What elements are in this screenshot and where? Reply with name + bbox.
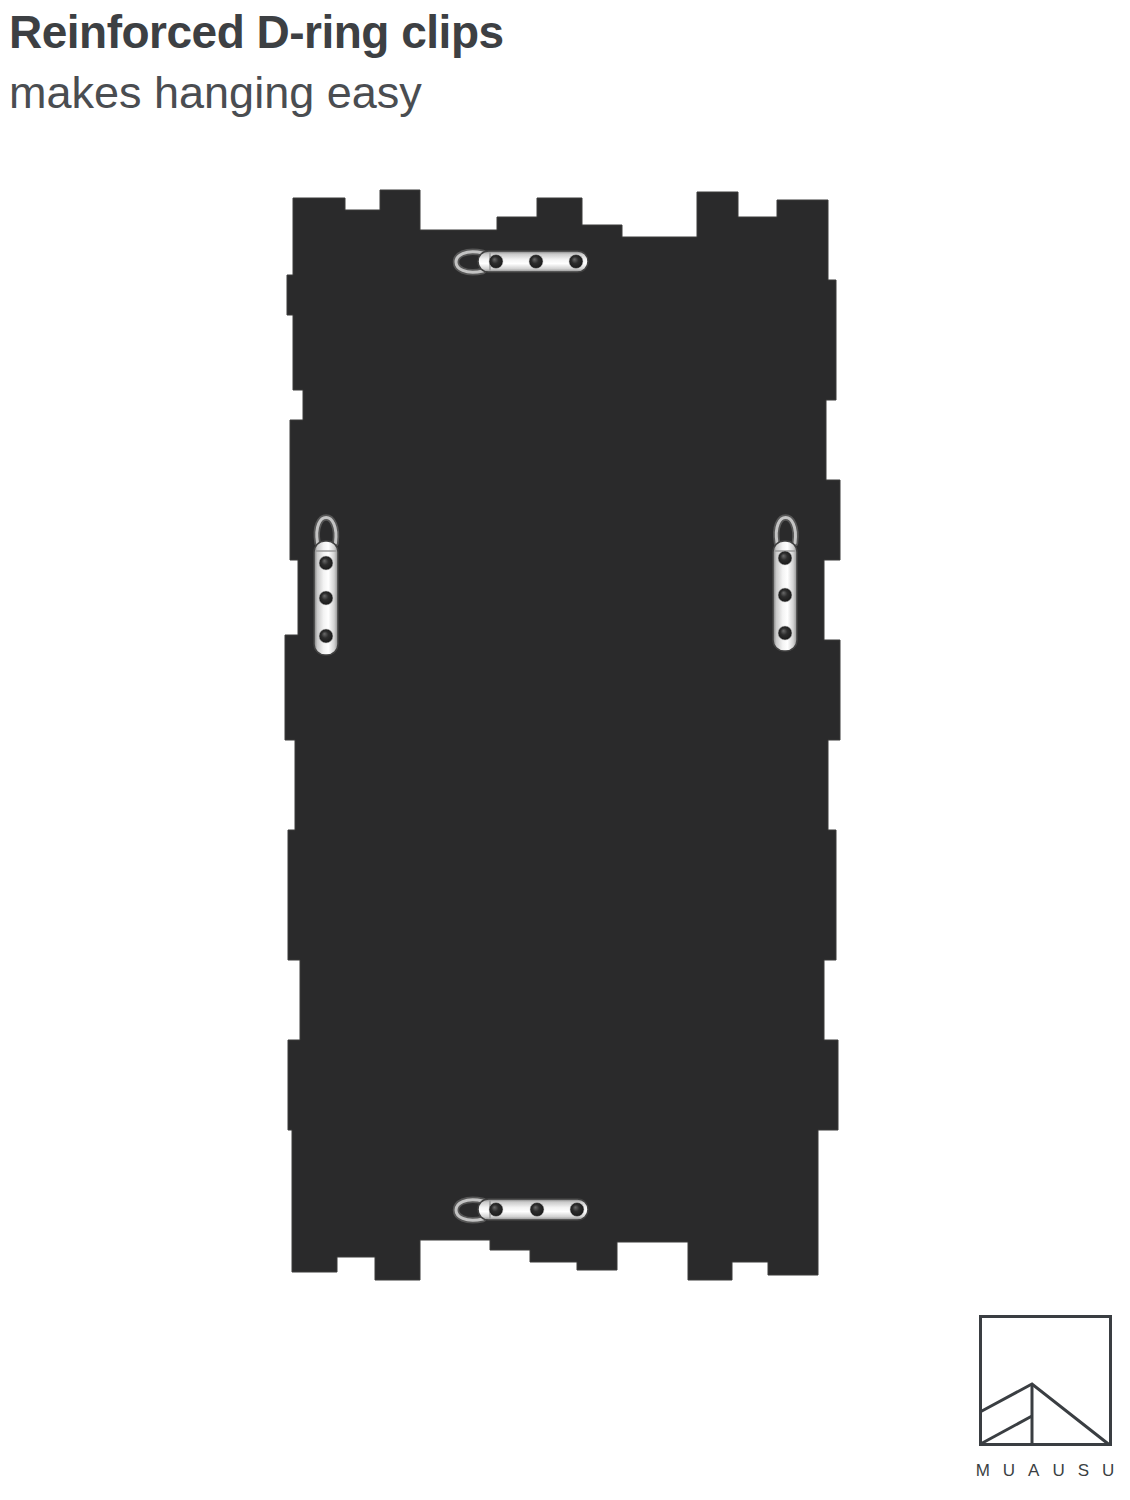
screw [319,556,333,570]
screw [778,551,792,565]
logo-square [980,1317,1110,1445]
logo-mountain-ridge [980,1416,1032,1444]
screw [778,626,792,640]
screw [319,629,333,643]
screw [529,255,543,269]
screw [530,1203,544,1217]
mirror-back-panel-art [0,0,1130,1500]
screw [319,591,333,605]
mountain-logo-icon [979,1315,1112,1446]
screw [569,255,583,269]
screw [489,1203,503,1217]
screw [489,255,503,269]
brand-name: MUAUSU [945,1461,1130,1481]
product-image: Reinforced D-ring clips makes hanging ea… [0,0,1130,1500]
screw [778,588,792,602]
brand-logo: MUAUSU [945,1315,1130,1481]
panel-shape [285,190,840,1280]
screw [570,1203,584,1217]
